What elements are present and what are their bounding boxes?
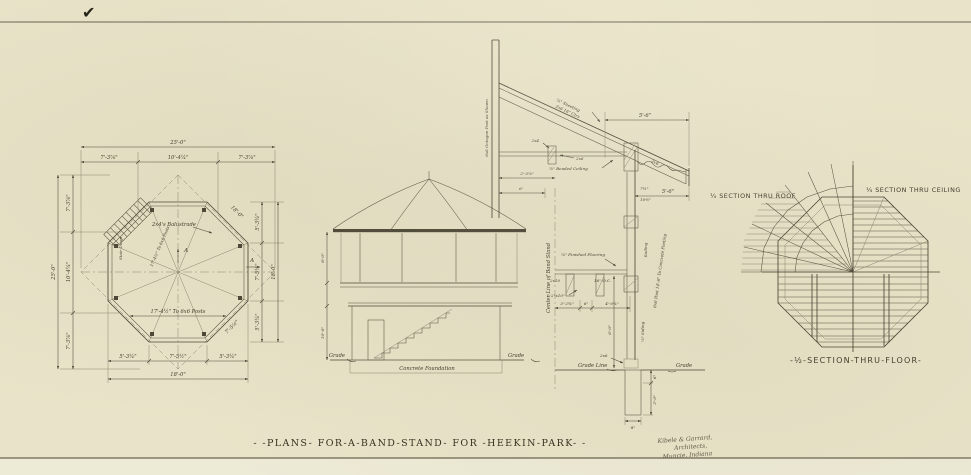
sheet-border: [0, 22, 971, 475]
dim-diag-ne: 18'-0": [229, 205, 244, 220]
sheeting-label: ⅞" Sheeting 2x6 16" Ctrs: [553, 97, 583, 119]
dim-rail-a: 7½": [640, 186, 649, 191]
dim-footing-width: 8": [631, 425, 636, 430]
dim-left-bot: 7'-3⅞": [66, 332, 72, 349]
blueprint-sheet: ✔ Stair Down 25'-0" 7'-3⅞" 10'-4¼: [0, 0, 971, 475]
elevation: Concrete Foundation Grade Grade 8'-0" 10…: [320, 171, 540, 373]
dim-diag-se: 7'-5½": [223, 318, 240, 335]
dim-eave-bot: 5'-6": [662, 189, 674, 195]
dim-bot-left: 5'-3¼": [119, 353, 136, 360]
blueprint-canvas: ✔ Stair Down 25'-0" 7'-3⅞" 10'-4¼: [0, 0, 971, 475]
double-joist-label: 2-2"x10": [546, 293, 565, 298]
dim-eave-top: 5'-6": [639, 113, 651, 119]
dim-ceiling-b: 6': [519, 186, 523, 191]
elevation-door: [368, 320, 384, 360]
posts-horiz-label: 17'-4½" To 6x6 Posts: [151, 308, 206, 315]
architect-signature: Kibele & Garrard, Architects, Muncie, In…: [656, 434, 713, 461]
dim-bot-right: 5'-3¼": [219, 353, 236, 360]
dim-overall-top: 25'-0": [169, 140, 185, 146]
concrete-footing: [625, 370, 641, 415]
stair-label: Stair Down: [118, 236, 123, 260]
railing-label: Railing: [643, 242, 648, 258]
grade-right-label: Grade: [508, 353, 524, 359]
plate-label: 2x6: [575, 156, 584, 161]
dim-top-left: 7'-3⅞": [100, 155, 117, 161]
check-mark: ✔: [82, 3, 95, 22]
dim-rail-b: 10½": [640, 197, 651, 202]
dim-floor-a: 3'-2¾": [560, 301, 574, 306]
dim-ceiling-a: 2'-3⅞": [519, 171, 534, 176]
post-footing-label: 6x6 Post 14'-6" To Concrete Footing: [652, 233, 667, 308]
elevation-dim-lower: 10'-0": [320, 327, 325, 339]
dim-overall-bot: 18'-0": [170, 372, 185, 378]
grade-line-label: Grade Line: [578, 363, 607, 369]
section-marker-a1: A: [183, 248, 188, 254]
floor-section-caption: -½-Section-Thru-Floor-: [790, 356, 922, 365]
dim-left-top: 7'-3⅞": [66, 194, 72, 211]
octagon-post-label: 6x6 Octagon Post as Shown: [484, 99, 489, 157]
floor-plan: Stair Down 25'-0" 7'-3⅞" 10'-4¼" 7'-3⅞" …: [51, 140, 284, 383]
blocking-label: 2x4: [530, 138, 539, 143]
elevation-stair: [374, 313, 450, 358]
section-grade-label: Grade: [676, 363, 692, 369]
elevation-dim-upper: 8'-0": [320, 253, 325, 263]
balustrade-label: 2x4's Balustrade: [151, 222, 196, 228]
joist-spacing-label: 16" O.C.: [594, 278, 611, 283]
dim-overall-right: 18'-0": [271, 264, 277, 279]
dim-right-top: 5'-3¼": [254, 213, 261, 230]
dim-top-right: 7'-3⅞": [238, 155, 255, 161]
eave-fascia: [333, 229, 526, 232]
grade-left-label: Grade: [329, 353, 345, 359]
dim-floor-b: 6": [584, 301, 589, 306]
dim-bot-mid: 7'-5½": [169, 353, 186, 360]
tail-label: 2x6: [650, 158, 660, 166]
dim-overall-left: 25'-0": [51, 264, 57, 280]
dim-right-bot: 5'-3¼": [254, 313, 261, 330]
framing-plan: ¼ Section Thru Roof ¼ Section Thru Ceili…: [710, 161, 961, 365]
dim-footing-top: 6": [652, 375, 657, 380]
finished-flooring-label: ⅞" Finished Flooring: [561, 252, 605, 257]
roof-quadrant-label: ¼ Section Thru Roof: [710, 192, 796, 200]
dim-footing-depth: 3'-0": [652, 395, 657, 405]
dim-left-mid: 10'-4¼": [65, 262, 72, 283]
dim-right-mid: 7'-5½": [254, 263, 261, 280]
ceiling-quadrant-label: ¼ Section Thru Ceiling: [866, 186, 961, 194]
dim-top-mid: 10'-4¼": [168, 154, 189, 161]
joist-label: 2x10: [549, 278, 561, 283]
dim-floor-c: 4'-0¾": [604, 301, 619, 306]
section-marker-a2: A: [249, 258, 254, 264]
dim-height: 6'-0": [607, 325, 612, 335]
sill-label: 2x6: [599, 353, 608, 358]
title-block: - -PLANS- FOR-A-BAND-STAND- FOR -HEEKIN-…: [253, 434, 713, 461]
drawing-title: - -PLANS- FOR-A-BAND-STAND- FOR -HEEKIN-…: [253, 438, 586, 449]
siding-label: ⅞" Siding: [640, 321, 645, 342]
foundation-label: Concrete Foundation: [399, 366, 454, 372]
beaded-ceiling-label: ⅞" Beaded Ceiling: [549, 166, 588, 171]
